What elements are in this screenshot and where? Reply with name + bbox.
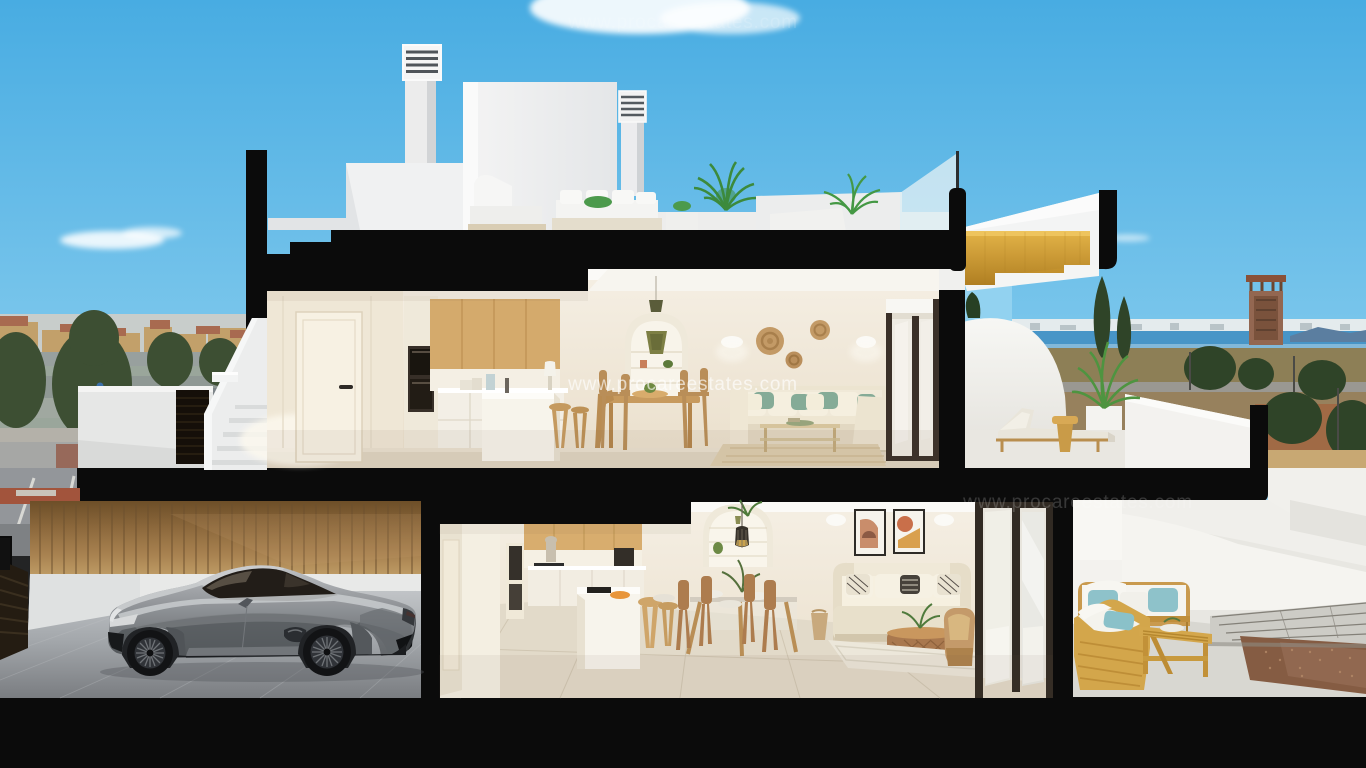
svg-text:www.procareestates.com: www.procareestates.com xyxy=(567,374,798,395)
svg-text:www.procareestates.com: www.procareestates.com xyxy=(567,12,798,33)
svg-text:www.procareestates.com: www.procareestates.com xyxy=(962,492,1193,513)
